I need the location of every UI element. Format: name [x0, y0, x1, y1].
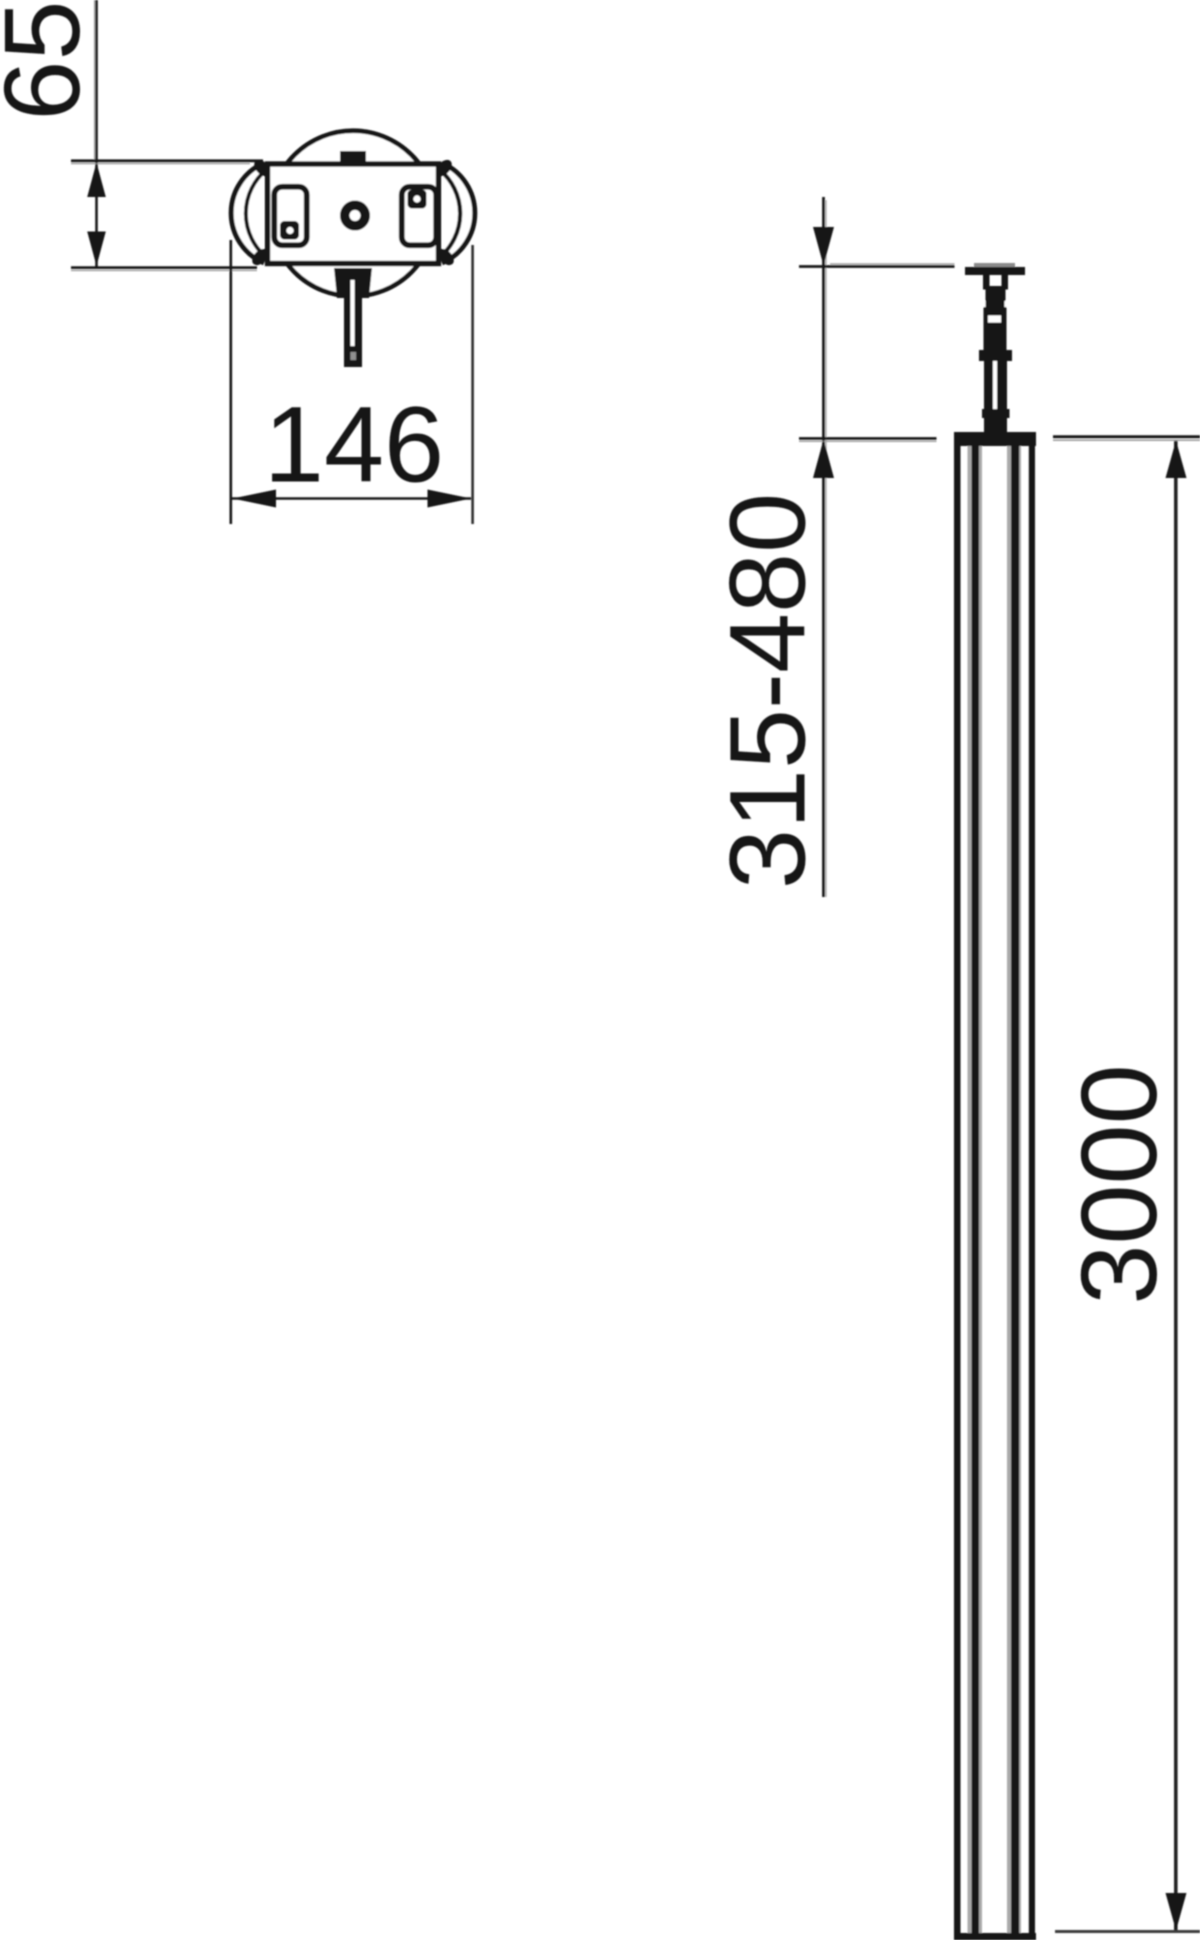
svg-text:3000: 3000: [1058, 1064, 1179, 1304]
svg-text:315-480: 315-480: [707, 493, 828, 889]
svg-text:146: 146: [264, 384, 444, 505]
svg-text:65: 65: [0, 0, 102, 120]
